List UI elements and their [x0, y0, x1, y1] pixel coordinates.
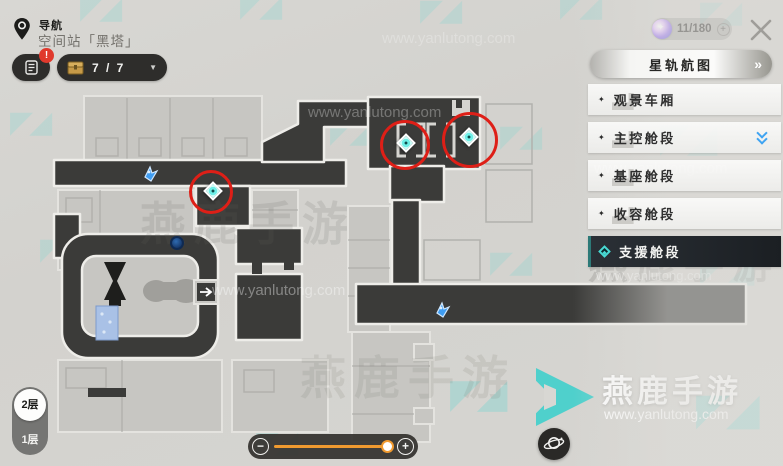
planet-icon	[538, 428, 570, 460]
floor-2-button[interactable]: 2层	[14, 389, 46, 421]
sidebar-item-label: 收容舱段	[614, 204, 676, 223]
trailblaze-power-pill[interactable]: 11/180 +	[652, 18, 732, 40]
notification-badge: !	[39, 48, 54, 63]
zoom-slider-track[interactable]	[274, 445, 388, 448]
zoom-in-button[interactable]: +	[397, 438, 414, 455]
highlight-circle	[442, 112, 498, 168]
highlight-circle	[189, 170, 233, 214]
zoom-slider[interactable]: − +	[248, 434, 418, 459]
floor-1-button[interactable]: 1层	[12, 431, 48, 447]
chest-progress-count: 7 / 7	[92, 61, 125, 75]
trailblaze-power-value: 11/180	[677, 23, 712, 35]
sidebar-item-label: 主控舱段	[614, 128, 676, 147]
current-location-name: 空间站「黑塔」	[38, 30, 140, 50]
sidebar-item-guanjing-chexiang[interactable]: ✦ 观景车厢	[588, 84, 781, 115]
trailblaze-power-icon	[652, 19, 672, 39]
highlight-circle	[380, 120, 430, 170]
teleport-diamond-icon	[598, 245, 611, 258]
sidebar-title-pill[interactable]: 星轨航图 »	[590, 50, 772, 78]
sidebar-item-label: 支援舱段	[619, 242, 681, 261]
sparkle-icon: ✦	[598, 95, 605, 104]
sparkle-icon: ✦	[598, 209, 605, 218]
blue-round-marker-icon[interactable]	[170, 236, 184, 250]
sidebar-item-zhukong-cangduan[interactable]: ✦ 主控舱段	[588, 122, 781, 153]
blue-sprite-marker-icon[interactable]	[432, 300, 452, 320]
floor-selector[interactable]: 2层 1层	[12, 387, 48, 455]
location-pin-icon	[13, 17, 31, 41]
chevron-down-icon: ▼	[149, 63, 157, 72]
blue-sprite-marker-icon[interactable]	[140, 164, 160, 184]
planet-view-button[interactable]	[538, 428, 570, 460]
double-chevron-right-icon: »	[754, 56, 762, 72]
chest-icon	[67, 61, 84, 75]
sidebar-item-shourong-cangduan[interactable]: ✦ 收容舱段	[588, 198, 781, 229]
chest-progress-dropdown[interactable]: 7 / 7 ▼	[57, 54, 167, 81]
close-button[interactable]	[747, 16, 775, 44]
area-list: ✦ 观景车厢 ✦ 主控舱段 ✦ 基座舱段 ✦ 收容舱段 » 支援舱段	[588, 84, 781, 274]
sparkle-icon: ✦	[598, 171, 605, 180]
sidebar-title: 星轨航图	[649, 55, 713, 74]
sidebar-item-jizuo-cangduan[interactable]: ✦ 基座舱段	[588, 160, 781, 191]
journal-icon	[25, 60, 38, 75]
sparkle-icon: ✦	[598, 133, 605, 142]
zoom-out-button[interactable]: −	[252, 438, 269, 455]
sidebar-item-zhiyuan-cangduan-selected[interactable]: » 支援舱段	[588, 236, 781, 267]
current-position-chevron-icon	[757, 129, 769, 145]
zoom-slider-knob[interactable]	[381, 440, 394, 453]
sidebar-item-label: 观景车厢	[614, 90, 676, 109]
add-currency-button[interactable]: +	[717, 23, 730, 36]
map-screen: ◤◢ ◤◢ ◤◢ ◤◢ ◤◢ ◤◢ ◤◢ ◤◢ ◤◢ ◤◢ ◤◢ ◤◢ ◤◢ ◤…	[0, 0, 783, 466]
sidebar-item-label: 基座舱段	[614, 166, 676, 185]
guide-button[interactable]: !	[12, 54, 50, 81]
close-icon	[747, 16, 775, 44]
